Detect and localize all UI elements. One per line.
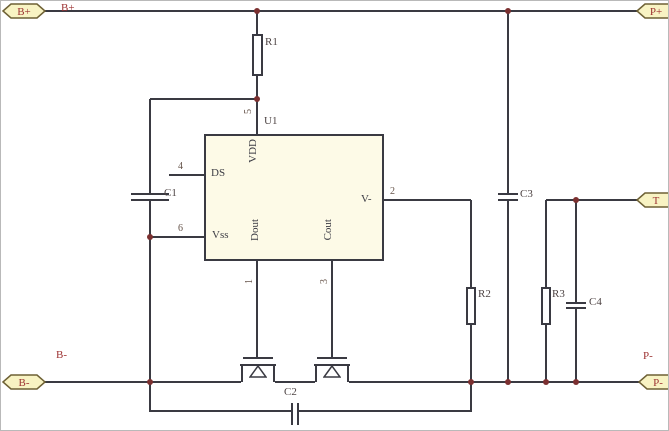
junction-dot xyxy=(543,379,549,385)
pin-number-6: 6 xyxy=(178,224,183,234)
wire-loop-right-leg xyxy=(470,382,472,412)
r2-label: R2 xyxy=(478,289,491,300)
wire-c4-top xyxy=(575,200,577,302)
r3-label: R3 xyxy=(552,289,565,300)
resistor-r2 xyxy=(466,287,476,325)
mosfet2-gate-bar xyxy=(317,357,347,359)
wire-bottom-rail-left xyxy=(44,381,241,383)
svg-text:B-: B- xyxy=(19,377,30,389)
port-tag-pplus: P+ xyxy=(636,3,669,19)
mosfet1-gate-bar xyxy=(243,357,273,359)
wire-pin2 xyxy=(384,199,471,201)
r1-label: R1 xyxy=(265,37,278,48)
mosfet1-left-leg xyxy=(241,364,243,382)
junction-dot xyxy=(505,8,511,14)
c3-label: C3 xyxy=(520,189,533,200)
circuit-schematic: R1 C1 U1 5 VDD 4 DS 6 Vss 2 V- Dout 1 Co… xyxy=(0,0,669,431)
capacitor-c4-plate-top xyxy=(566,302,586,304)
wire-loop-bottom-right xyxy=(299,410,471,412)
pin-number-3: 3 xyxy=(320,279,330,284)
junction-dot xyxy=(573,197,579,203)
capacitor-c2-plate-right xyxy=(297,403,299,425)
pin-name-cout: Cout xyxy=(323,219,334,240)
junction-dot xyxy=(468,379,474,385)
pin-name-vdd: VDD xyxy=(248,139,259,163)
pin-name-vminus: V- xyxy=(361,194,372,205)
wire-c4-bottom xyxy=(575,309,577,382)
net-label-bminus: B- xyxy=(56,350,67,361)
junction-dot xyxy=(573,379,579,385)
wire-c3-bottom xyxy=(507,201,509,382)
mosfet2-right-leg xyxy=(347,364,349,382)
wire-pin6 xyxy=(150,236,204,238)
pin-name-dout: Dout xyxy=(250,219,261,241)
pin-name-ds: DS xyxy=(211,168,225,179)
junction-dot xyxy=(254,8,260,14)
svg-text:T: T xyxy=(653,195,660,207)
port-tag-pminus: P- xyxy=(638,374,669,390)
pin-number-5: 5 xyxy=(244,109,254,114)
c1-label: C1 xyxy=(164,188,177,199)
wire-c1-top xyxy=(149,99,151,193)
wire-pin4-stub xyxy=(169,174,204,176)
junction-dot xyxy=(505,379,511,385)
wire-c3-top xyxy=(507,11,509,193)
c4-label: C4 xyxy=(589,297,602,308)
svg-text:P+: P+ xyxy=(650,6,662,18)
c2-label: C2 xyxy=(284,387,297,398)
wire-bottom-rail-right xyxy=(349,381,641,383)
port-tag-bminus: B- xyxy=(2,374,46,390)
mosfet2-arrow-icon xyxy=(323,365,341,379)
resistor-r1 xyxy=(252,34,263,76)
junction-dot xyxy=(254,96,260,102)
port-tag-bplus: B+ xyxy=(2,3,46,19)
wire-pin5-link xyxy=(150,98,257,100)
wire-top-rail xyxy=(44,10,638,12)
wire-r2-bottom-lead xyxy=(470,325,472,382)
wire-loop-bottom-left xyxy=(150,410,292,412)
ic-u1-body xyxy=(204,134,384,261)
port-tag-t: T xyxy=(636,192,669,208)
junction-dot xyxy=(147,234,153,240)
pin-number-4: 4 xyxy=(178,162,183,172)
wire-c1-bottom xyxy=(149,201,151,382)
net-label-pminus: P- xyxy=(643,351,653,362)
capacitor-c3-plate-top xyxy=(498,193,518,195)
svg-text:B+: B+ xyxy=(17,6,31,18)
svg-text:P-: P- xyxy=(653,377,663,389)
wire-t-net xyxy=(546,199,638,201)
pin-number-2: 2 xyxy=(390,187,395,197)
wire-pin5 xyxy=(256,99,258,134)
net-label-bplus: B+ xyxy=(61,3,75,14)
mosfet1-arrow-icon xyxy=(249,365,267,379)
junction-dot xyxy=(147,379,153,385)
wire-bottom-rail-mid xyxy=(275,381,315,383)
u1-label: U1 xyxy=(264,116,277,127)
wire-r1-top-lead xyxy=(256,11,258,34)
wire-loop-left-leg xyxy=(149,382,151,412)
resistor-r3 xyxy=(541,287,551,325)
wire-r3-bottom-lead xyxy=(545,325,547,382)
pin-name-vss: Vss xyxy=(212,230,229,241)
wire-r3-top-lead xyxy=(545,200,547,287)
wire-r2-top-lead xyxy=(470,200,472,287)
mosfet2-left-leg xyxy=(315,364,317,382)
wire-pin3 xyxy=(331,261,333,358)
pin-number-1: 1 xyxy=(245,279,255,284)
mosfet1-right-leg xyxy=(273,364,275,382)
capacitor-c2-plate-left xyxy=(291,403,293,425)
wire-pin1 xyxy=(256,261,258,358)
